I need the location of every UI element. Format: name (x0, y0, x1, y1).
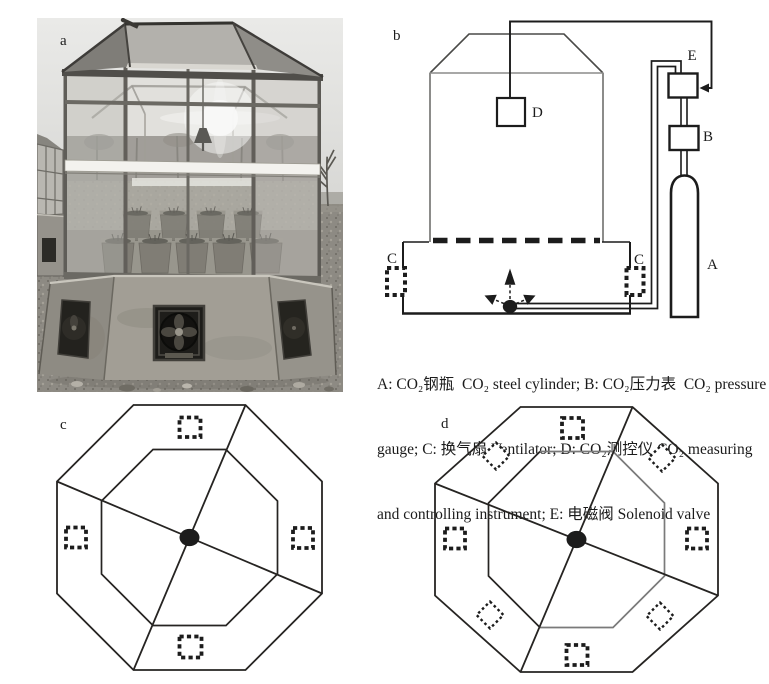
ventilator-left (387, 268, 405, 295)
neighbor-vent (42, 238, 56, 262)
left-fan-vent (58, 300, 90, 358)
ventilator-north (180, 418, 201, 438)
concrete-base (39, 276, 336, 389)
up-arrowhead (505, 269, 516, 285)
solenoid-valve-label: E (688, 48, 697, 64)
fan-hub (175, 328, 183, 336)
ventilator-northeast (649, 445, 676, 472)
ventilator-east (687, 529, 707, 549)
caption-line-1: A: CO₂钢瓶 CO₂ steel cylinder; B: CO₂压力表 C… (377, 374, 769, 396)
gas-outlet-dot (503, 300, 517, 313)
gas-pipe-outer (512, 61, 681, 304)
ventilator-southwest (477, 602, 504, 629)
ventilator-south (180, 637, 202, 658)
inner-octagon-dark (489, 452, 541, 628)
wire-arrowhead (700, 84, 710, 93)
panel-c-plan: c (24, 398, 345, 684)
ventilator-left-label: C (387, 251, 397, 267)
ventilator-east (293, 528, 313, 548)
ventilator-northwest (483, 443, 510, 470)
pipe-e-b (681, 98, 687, 127)
center-fan-vent (154, 306, 204, 360)
pipe-b-a (681, 150, 687, 177)
neighbor-chamber (37, 134, 65, 276)
measuring-instrument-label: D (532, 105, 543, 121)
greenhouse-outline (430, 34, 603, 242)
panel-b-schematic: b C C D E B (374, 8, 769, 324)
diffusion-arrows (485, 269, 536, 305)
solenoid-valve-box (669, 74, 698, 98)
ventilator-south (567, 645, 588, 665)
left-arrowhead (485, 295, 497, 305)
center-outlet-dot (180, 529, 200, 546)
ventilator-right (627, 268, 644, 295)
panel-d-plan: d (405, 398, 769, 684)
co2-cylinder-label: A (707, 257, 718, 273)
panel-c-label: c (60, 417, 67, 433)
ventilator-north (562, 418, 583, 438)
co2-cylinder (671, 176, 698, 318)
figure-page: a b C C D E (0, 0, 769, 684)
ventilator-southeast (647, 603, 674, 630)
ventilator-right-label: C (634, 252, 644, 268)
roof-line (430, 34, 603, 73)
right-fan-vent (278, 300, 311, 359)
panel-a-label: a (60, 33, 67, 49)
ventilator-west (66, 528, 86, 548)
measuring-instrument-box (497, 98, 525, 126)
panel-a-photo: a (37, 18, 343, 392)
panel-d-label: d (441, 416, 449, 432)
base-chamber (402, 241, 631, 314)
ventilator-west (445, 529, 465, 549)
pressure-gauge-box (670, 126, 699, 150)
center-outlet-dot (567, 531, 587, 548)
panel-b-label: b (393, 28, 401, 44)
pressure-gauge-label: B (703, 129, 713, 145)
